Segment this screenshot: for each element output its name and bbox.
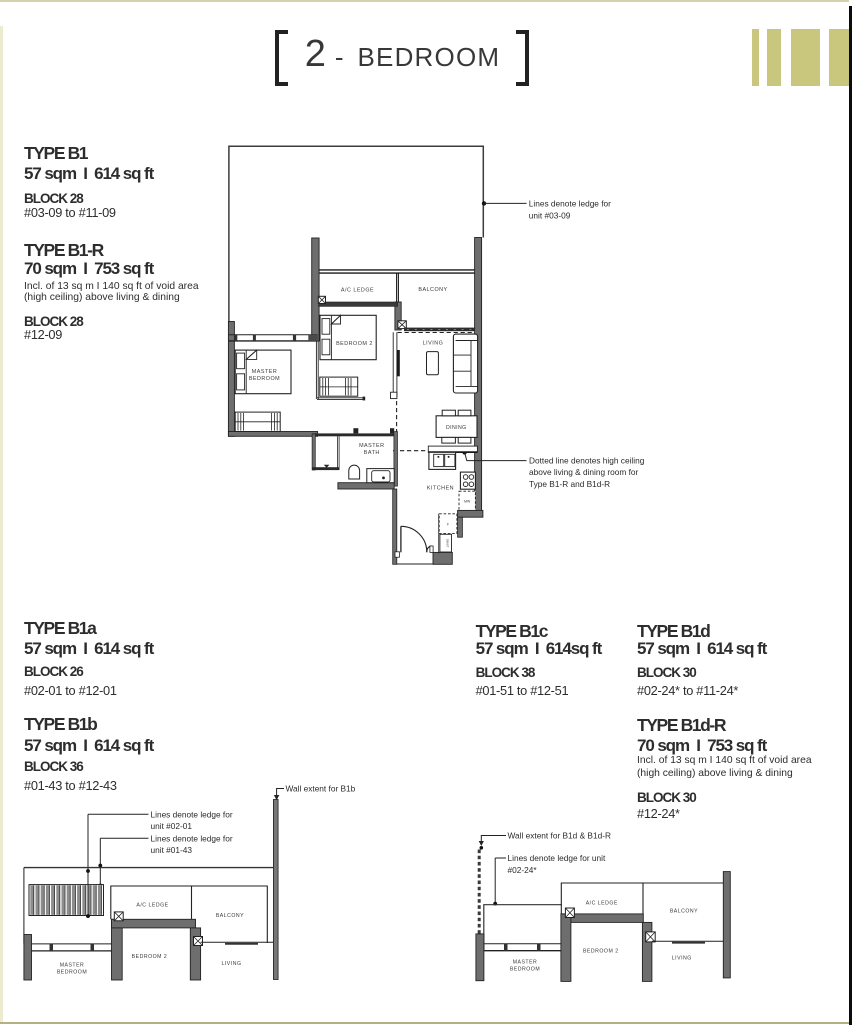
svg-text:BALCONY: BALCONY bbox=[418, 287, 447, 293]
svg-text:MW: MW bbox=[464, 500, 471, 504]
svg-text:Wall extent for B1d & B1d-R: Wall extent for B1d & B1d-R bbox=[508, 831, 611, 841]
svg-text:A/C LEDGE: A/C LEDGE bbox=[341, 288, 374, 294]
svg-text:LIVING: LIVING bbox=[672, 956, 692, 962]
svg-text:Type B1-R and B1d-R: Type B1-R and B1d-R bbox=[529, 479, 610, 489]
svg-text:above living & dining room for: above living & dining room for bbox=[529, 467, 639, 477]
svg-text:BALCONY: BALCONY bbox=[216, 913, 244, 919]
svg-text:LIVING: LIVING bbox=[221, 961, 241, 967]
svg-text:unit #02-01: unit #02-01 bbox=[151, 821, 193, 831]
svg-text:unit #03-09: unit #03-09 bbox=[529, 210, 571, 220]
svg-text:MASTER: MASTER bbox=[60, 963, 85, 969]
svg-text:BEDROOM 2: BEDROOM 2 bbox=[336, 341, 373, 347]
svg-text:MASTER: MASTER bbox=[359, 443, 384, 449]
svg-text:Lines denote ledge for: Lines denote ledge for bbox=[529, 199, 611, 209]
svg-text:KITCHEN: KITCHEN bbox=[427, 485, 454, 491]
svg-text:BEDROOM: BEDROOM bbox=[510, 967, 540, 973]
svg-text:A/C LEDGE: A/C LEDGE bbox=[586, 901, 618, 907]
svg-text:Lines denote ledge for: Lines denote ledge for bbox=[151, 809, 233, 819]
svg-text:BEDROOM: BEDROOM bbox=[249, 376, 280, 382]
svg-text:unit #01-43: unit #01-43 bbox=[151, 845, 193, 855]
svg-text:Dotted line denotes high ceili: Dotted line denotes high ceiling bbox=[529, 455, 645, 465]
svg-text:MASTER: MASTER bbox=[252, 369, 277, 375]
svg-text:DINING: DINING bbox=[446, 425, 467, 431]
svg-text:DB/ST: DB/ST bbox=[446, 539, 450, 548]
svg-text:#02-24*: #02-24* bbox=[508, 865, 538, 875]
svg-text:BALCONY: BALCONY bbox=[670, 909, 698, 915]
svg-text:BATH: BATH bbox=[364, 450, 380, 456]
svg-text:A/C LEDGE: A/C LEDGE bbox=[136, 903, 168, 909]
svg-text:Lines denote ledge for: Lines denote ledge for bbox=[151, 833, 233, 843]
svg-text:BEDROOM 2: BEDROOM 2 bbox=[132, 954, 168, 960]
svg-text:Wall extent for B1b: Wall extent for B1b bbox=[286, 784, 356, 794]
svg-text:LIVING: LIVING bbox=[423, 341, 444, 347]
svg-text:BEDROOM: BEDROOM bbox=[57, 970, 87, 976]
svg-text:Lines denote ledge for unit: Lines denote ledge for unit bbox=[508, 853, 606, 863]
svg-text:BEDROOM 2: BEDROOM 2 bbox=[583, 949, 619, 955]
svg-text:MASTER: MASTER bbox=[513, 960, 538, 966]
svg-text:F: F bbox=[447, 523, 449, 527]
